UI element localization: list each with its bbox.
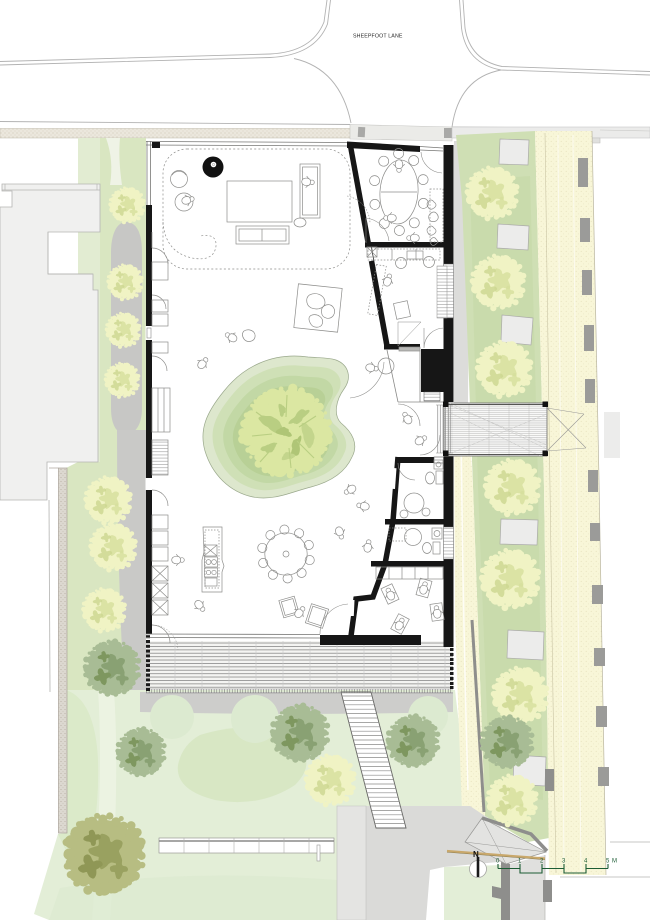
svg-text:M: M bbox=[612, 859, 617, 865]
svg-text:N: N bbox=[473, 850, 479, 859]
svg-text:SHEEPFOOT LANE: SHEEPFOOT LANE bbox=[353, 34, 403, 40]
